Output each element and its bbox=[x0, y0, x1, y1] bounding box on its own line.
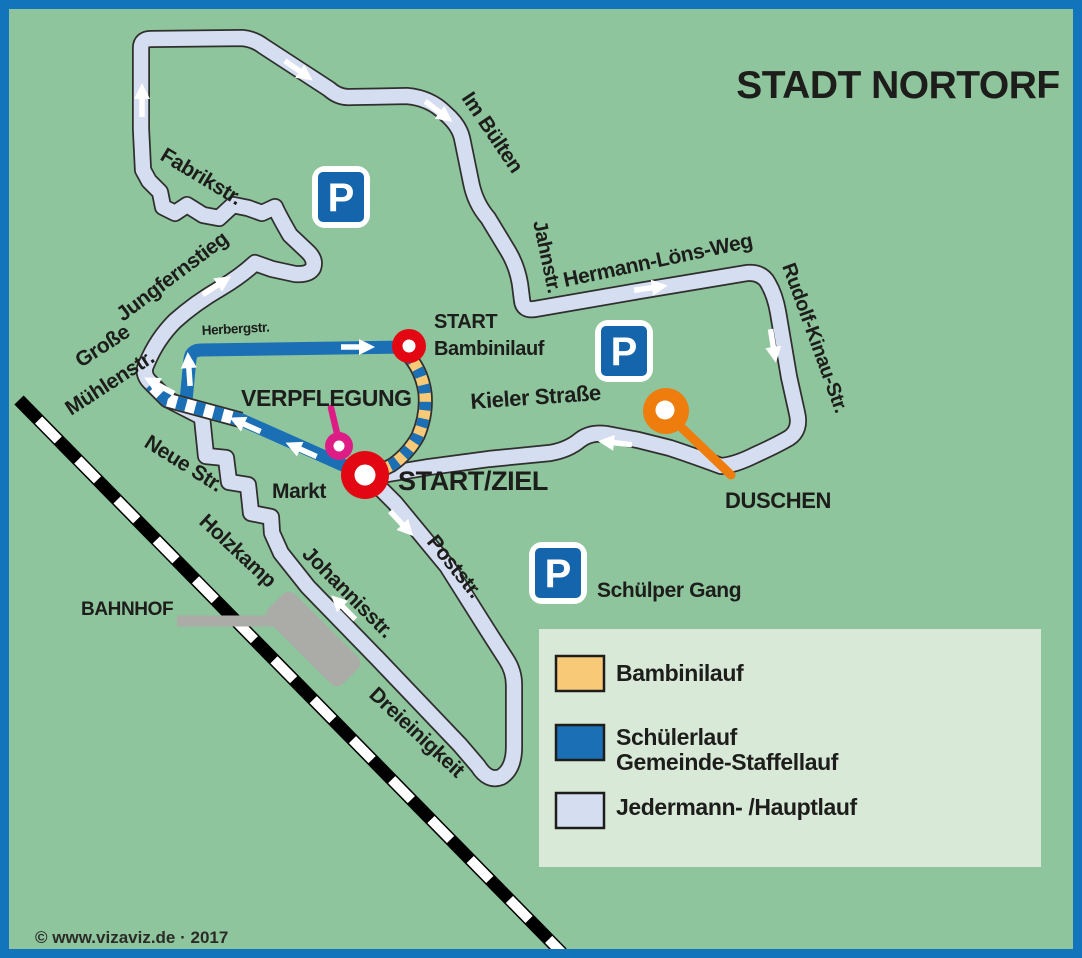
street-label-schuelper-gang: Schülper Gang bbox=[597, 579, 741, 602]
street-label-jungfernstieg: Jungfernstieg bbox=[112, 227, 233, 326]
bahnhof-label: BAHNHOF bbox=[81, 599, 173, 620]
parking-icon: P bbox=[611, 330, 638, 374]
legend-label-jedermann-hauptlauf: Jedermann- /Hauptlauf bbox=[616, 794, 858, 820]
legend-swatch-jedermann bbox=[556, 793, 604, 828]
start-bambinilauf-label-line1: START bbox=[434, 311, 497, 333]
verpflegung-marker bbox=[325, 408, 353, 460]
legend-panel bbox=[539, 629, 1041, 867]
duschen-label: DUSCHEN bbox=[725, 488, 831, 513]
verpflegung-label: VERPFLEGUNG bbox=[241, 385, 412, 411]
legend-label-gemeinde-staffellauf: Gemeinde-Staffellauf bbox=[616, 749, 839, 775]
start-bambinilauf-label-line2: Bambinilauf bbox=[434, 338, 545, 360]
legend: Bambinilauf Schülerlauf Gemeinde-Staffel… bbox=[539, 629, 1041, 867]
street-label-markt: Markt bbox=[272, 480, 326, 503]
parking-icon: P bbox=[545, 552, 572, 596]
copyright-notice: © www.vizaviz.de · 2017 bbox=[35, 928, 228, 947]
start-ziel-marker bbox=[341, 451, 389, 499]
parking-icon: P bbox=[328, 176, 355, 220]
street-label-kieler-strasse: Kieler Straße bbox=[470, 380, 602, 414]
legend-label-bambinilauf: Bambinilauf bbox=[616, 660, 744, 686]
route-bambinilauf bbox=[378, 355, 425, 472]
street-label-herbergstr: Herbergstr. bbox=[201, 319, 269, 338]
street-label-jahnstr: Jahnstr. bbox=[528, 218, 565, 294]
start-ziel-label: START/ZIEL bbox=[398, 466, 548, 496]
map-canvas: Bambinilauf Schülerlauf Gemeinde-Staffel… bbox=[9, 9, 1082, 958]
parking-sign-schuelper-gang: P bbox=[529, 542, 587, 604]
legend-label-schuelerlauf: Schülerlauf bbox=[616, 724, 738, 750]
page-title: STADT NORTORF bbox=[736, 64, 1060, 107]
parking-sign-kieler-strasse: P bbox=[595, 320, 653, 382]
legend-swatch-schuelerlauf bbox=[556, 725, 604, 760]
parking-sign-fabrikstr: P bbox=[312, 166, 370, 228]
legend-swatch-bambinilauf bbox=[556, 656, 604, 691]
start-bambinilauf-marker bbox=[392, 329, 426, 363]
city-run-map: Bambinilauf Schülerlauf Gemeinde-Staffel… bbox=[0, 0, 1082, 958]
